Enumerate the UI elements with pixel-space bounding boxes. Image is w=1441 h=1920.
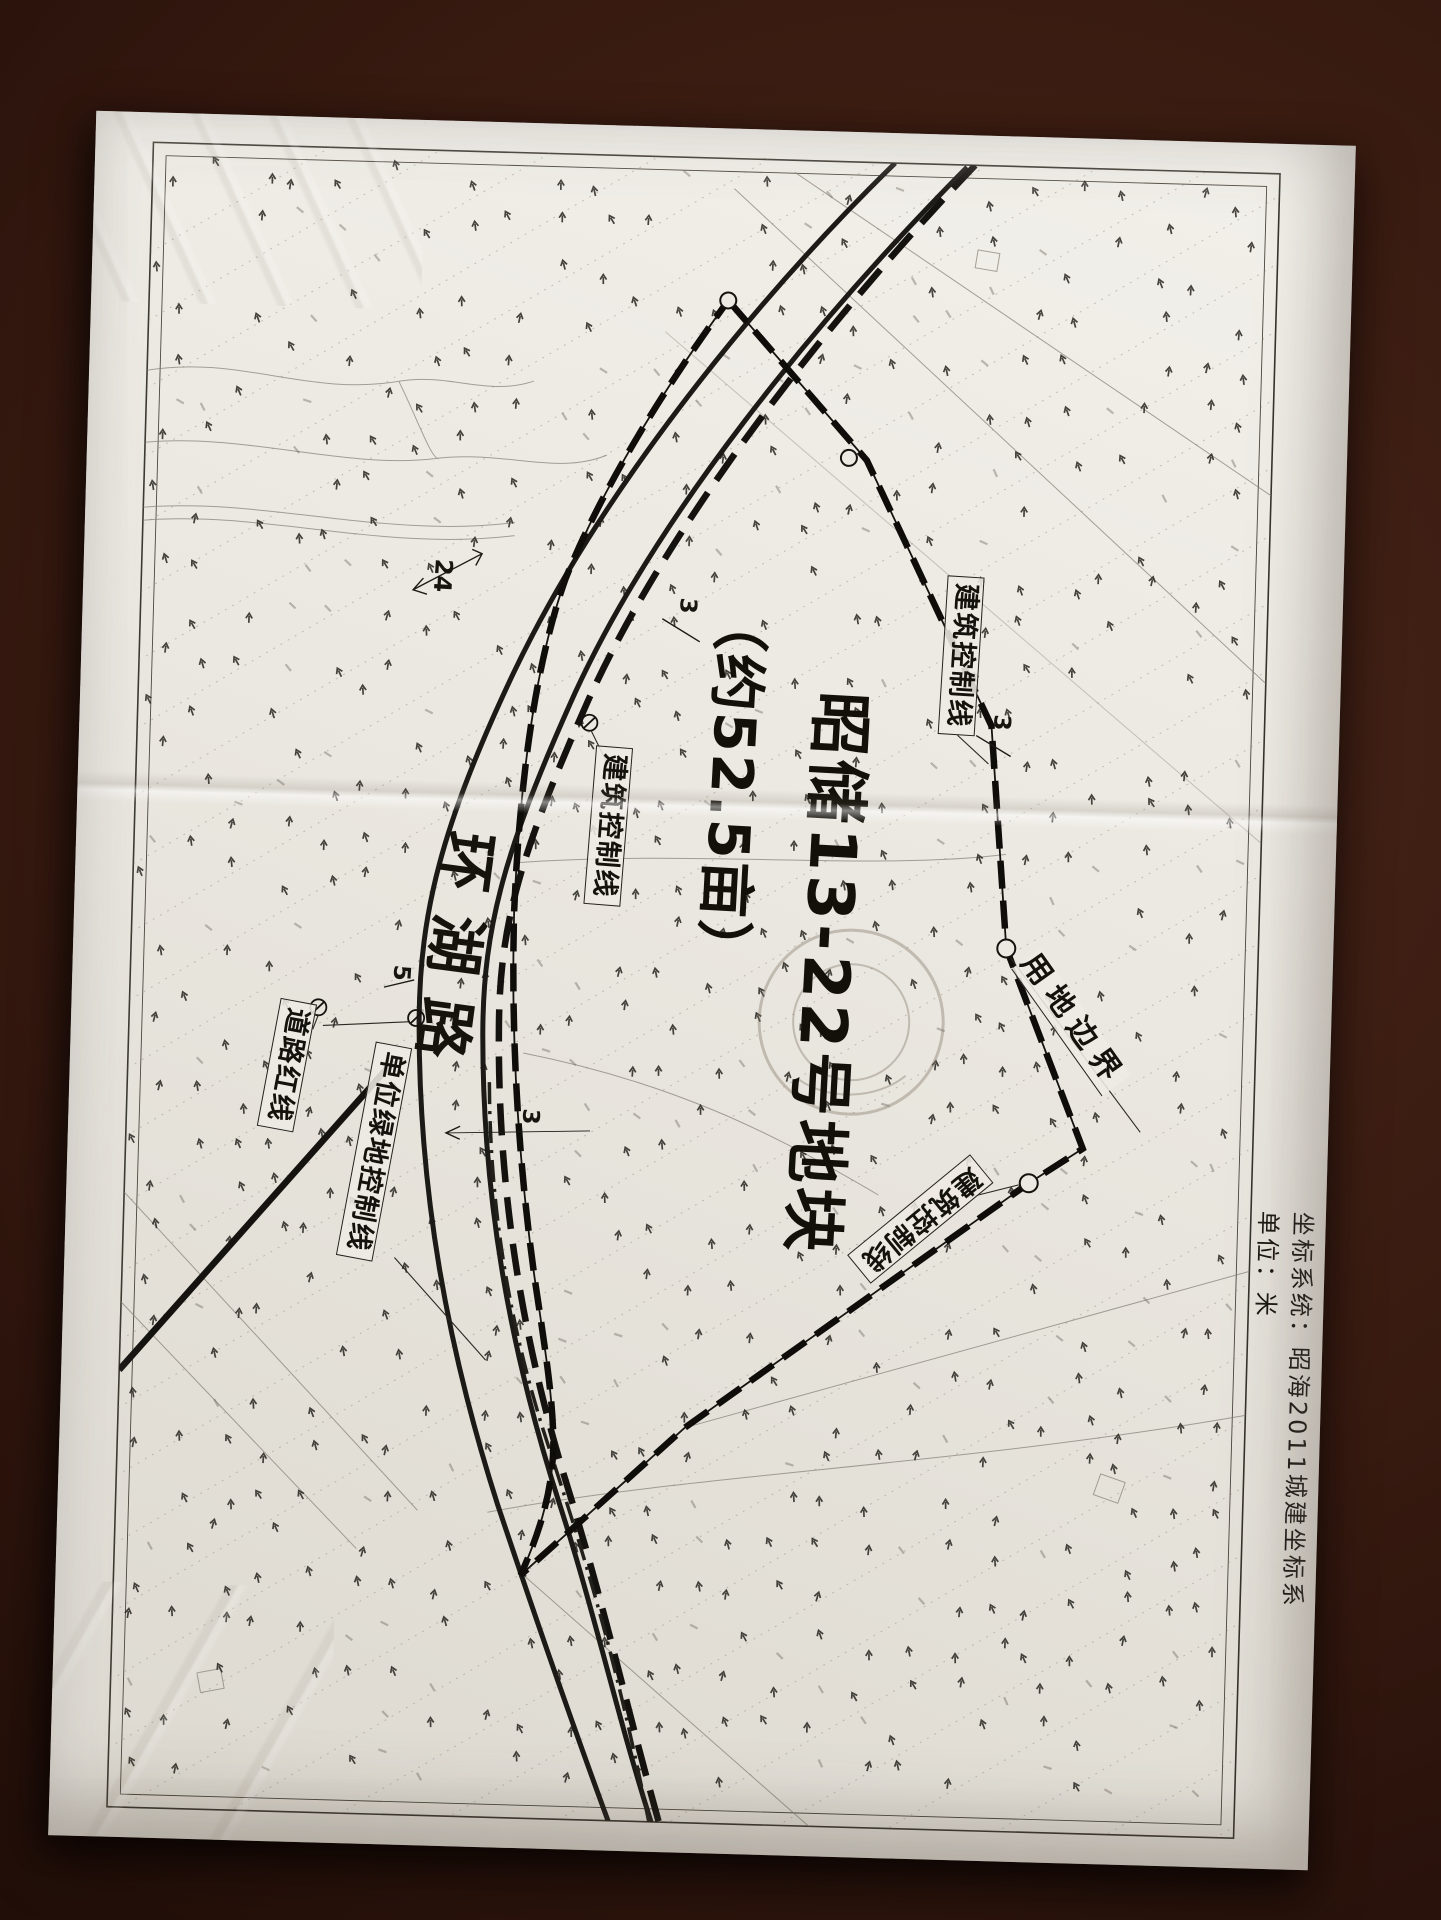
dimension-setback-c: 3 [517, 1108, 544, 1126]
dimension-setback-b: 3 [988, 714, 1015, 732]
dimension-road-width: 24 [428, 558, 458, 593]
margin-note: 坐标系统：昭海2011城建坐标系 单位：米 [1243, 1210, 1323, 1582]
dimension-offset-5: 5 [388, 964, 415, 982]
map-sheet: 24 3 3 3 5 昭储13-22号地块 （约52.5亩） 环湖路 建筑控制线… [48, 111, 1356, 1871]
photo-background: 24 3 3 3 5 昭储13-22号地块 （约52.5亩） 环湖路 建筑控制线… [0, 0, 1441, 1920]
dimension-setback-a: 3 [674, 597, 701, 615]
